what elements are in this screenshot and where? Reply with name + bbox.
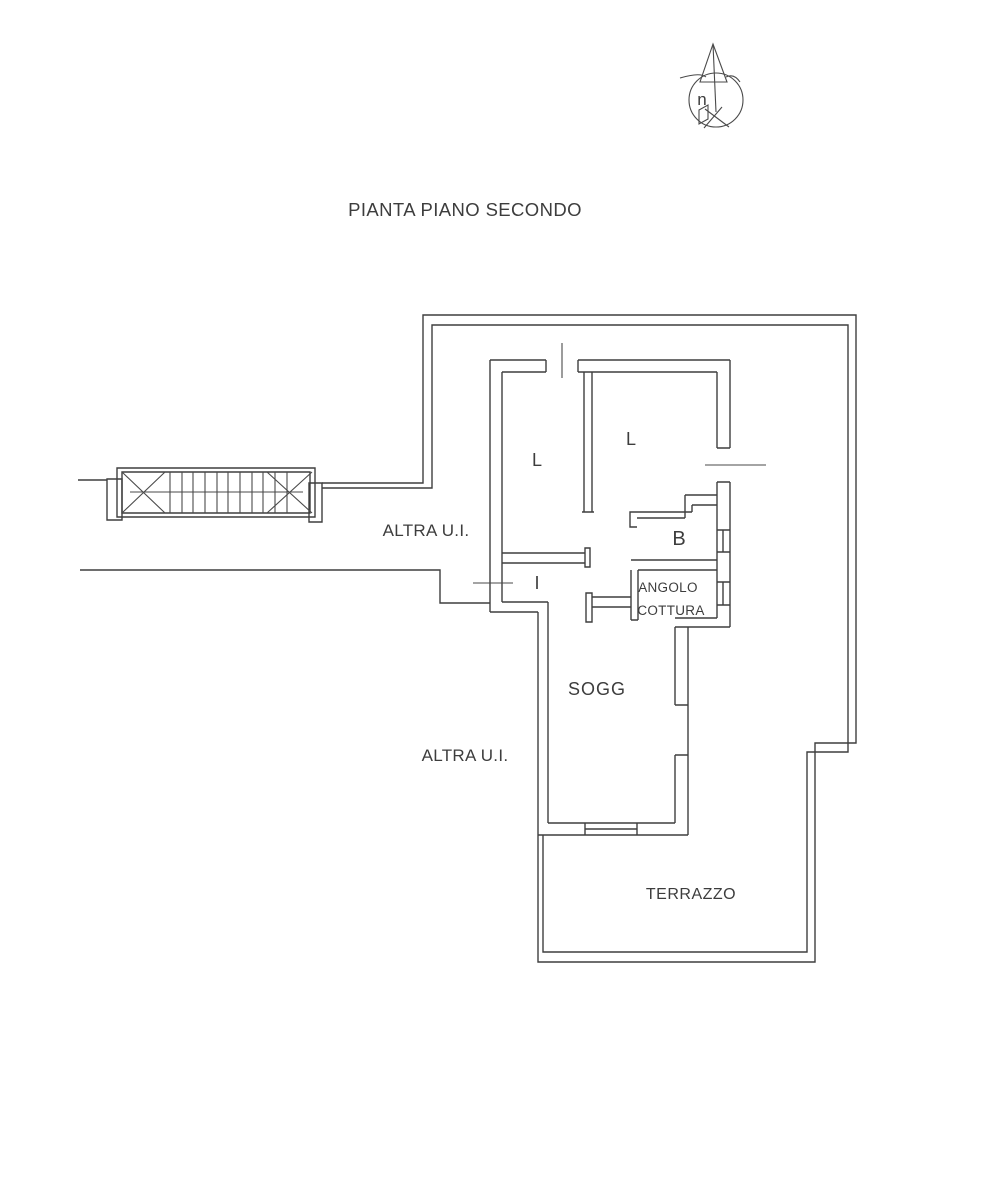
- label-altra-ui-upper: ALTRA U.I.: [383, 521, 470, 540]
- living-room-window: [585, 823, 637, 835]
- label-room-living: SOGG: [568, 679, 626, 699]
- bath-window: [717, 530, 730, 552]
- staircase: [107, 468, 322, 522]
- north-compass-icon: n: [680, 44, 743, 128]
- room-labels: ALTRA U.I. ALTRA U.I. L L B I ANGOLO COT…: [383, 429, 736, 903]
- label-room-l1: L: [532, 450, 542, 470]
- label-room-bath: B: [672, 528, 685, 550]
- plan-title: PIANTA PIANO SECONDO: [348, 199, 582, 220]
- label-room-l2: L: [626, 429, 636, 449]
- label-room-entry: I: [534, 573, 539, 593]
- label-kitchen-line1: ANGOLO: [638, 580, 698, 595]
- label-room-terrace: TERRAZZO: [646, 886, 736, 903]
- kitchen-window: [717, 582, 730, 605]
- outer-boundary-walls: [78, 315, 856, 962]
- floorplan-page: n PIANTA PIANO SECONDO: [0, 0, 1005, 1200]
- label-altra-ui-lower: ALTRA U.I.: [422, 746, 509, 765]
- floorplan-drawing: n PIANTA PIANO SECONDO: [0, 0, 1005, 1200]
- label-kitchen-line2: COTTURA: [637, 603, 704, 618]
- compass-north-label: n: [697, 90, 706, 109]
- door-window-marks: [473, 343, 766, 835]
